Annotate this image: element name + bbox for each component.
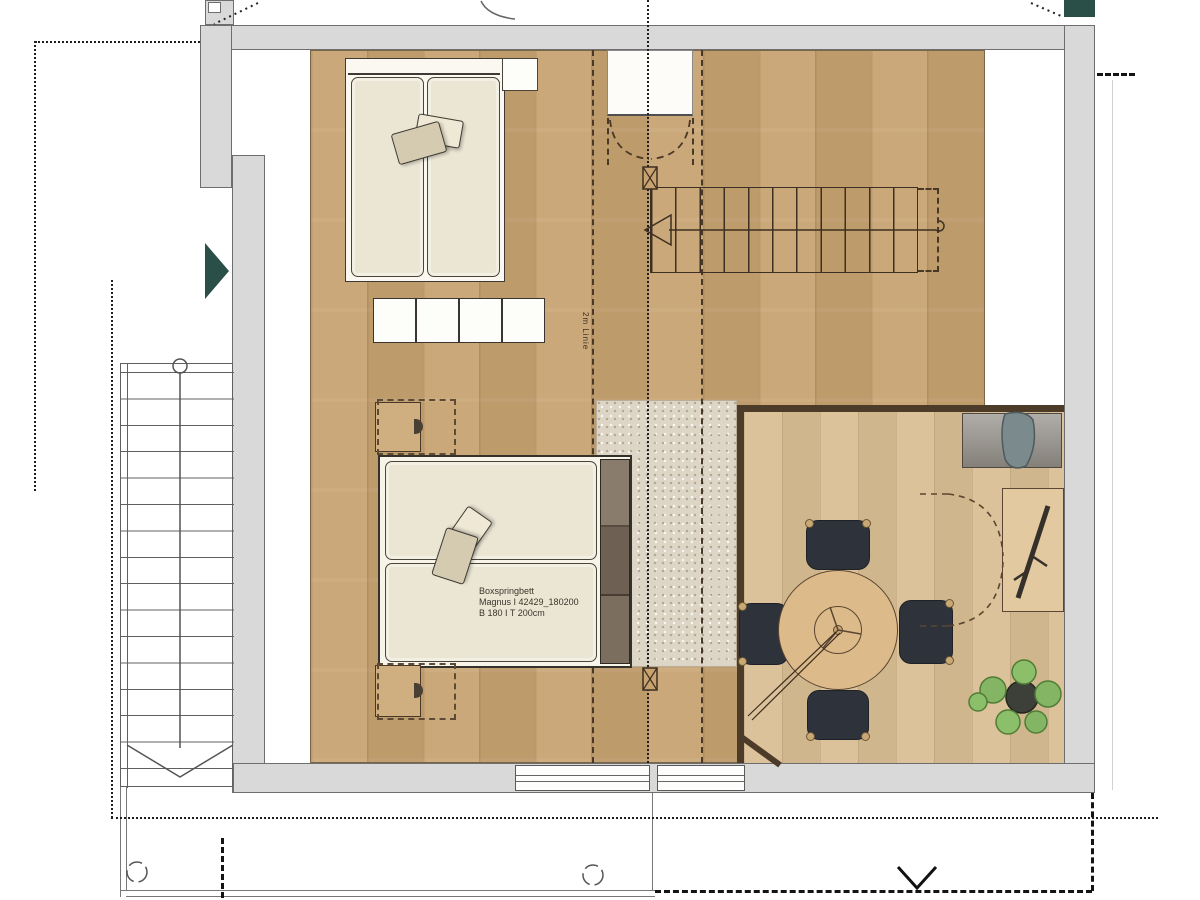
roof-dotted-diagonal-right — [1031, 3, 1061, 16]
roof-dotted-diagonal-left — [214, 3, 258, 24]
textile-on-sideboard — [1002, 412, 1034, 467]
interior-stair-line-hook — [936, 221, 944, 231]
branch-on-desk — [1014, 506, 1048, 598]
exterior-stair-start-circle — [173, 359, 187, 373]
potted-plant — [969, 660, 1061, 734]
terrace-column-right — [583, 865, 603, 885]
dining-door-arc-bottom — [948, 562, 1003, 626]
pendant-lamp-spokes — [823, 607, 861, 648]
balcony-arrow — [898, 867, 936, 888]
door-swing-arc-left — [610, 120, 649, 159]
terrace-column-left — [127, 862, 147, 882]
newel-post-top — [643, 167, 657, 189]
exterior-stair-arrow — [127, 745, 233, 777]
interior-stair-arrowhead — [645, 215, 671, 245]
floor-plan-canvas: Boxspringbett Magnus I 42429_180200 B 18… — [0, 0, 1200, 900]
dining-door-arc-top — [948, 494, 1003, 556]
top-curve-line — [481, 1, 515, 19]
dining-wall-chamfer — [740, 736, 780, 765]
plan-linework-overlay — [0, 0, 1200, 900]
newel-post-bottom — [643, 668, 657, 690]
door-swing-arc-right — [651, 120, 690, 159]
